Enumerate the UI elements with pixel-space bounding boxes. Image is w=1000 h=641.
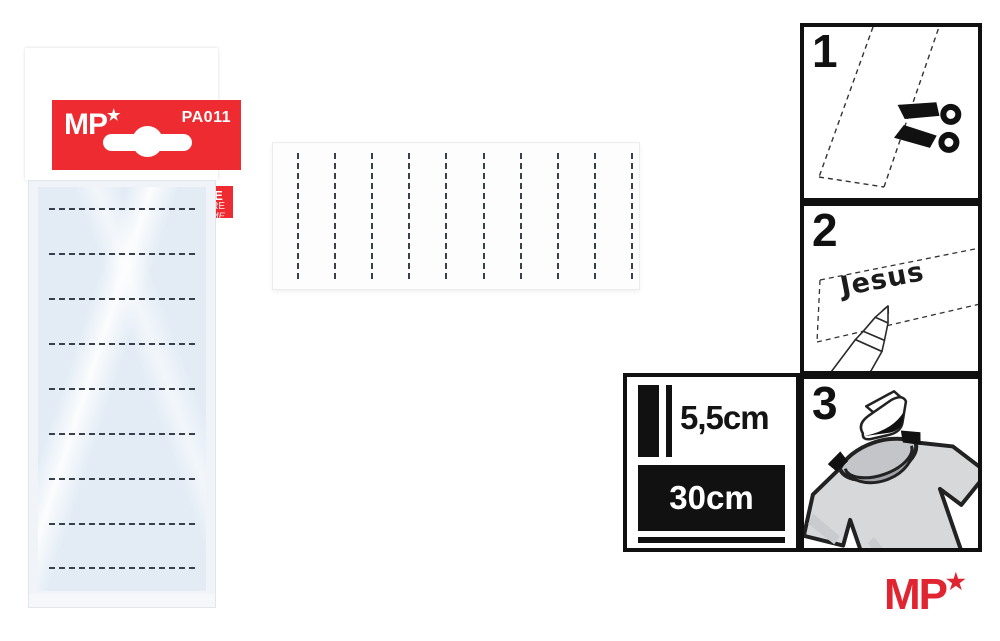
- cutline: [49, 208, 195, 210]
- tape-length-box: 30cm: [638, 465, 785, 531]
- cutline: [49, 298, 195, 300]
- cutline: [49, 433, 195, 435]
- hang-hole-circle: [132, 126, 163, 157]
- footer-brand-star-icon: ★: [946, 569, 966, 594]
- step-3-number: 3: [812, 379, 836, 427]
- step-1-number: 1: [812, 27, 836, 75]
- tape-pad: [38, 187, 206, 591]
- vline: [594, 153, 596, 279]
- vline: [334, 153, 336, 279]
- width-bar-thick: [638, 385, 659, 457]
- cutline: [49, 478, 195, 480]
- tape-strip-sample: [272, 142, 640, 290]
- vline: [557, 153, 559, 279]
- vline: [631, 153, 633, 279]
- cutline: [49, 253, 195, 255]
- cutline: [49, 388, 195, 390]
- step-1-panel: 1: [800, 23, 982, 202]
- vline: [408, 153, 410, 279]
- step-3-panel: 3: [800, 375, 982, 552]
- footer-brand-text: MP: [884, 570, 946, 619]
- package-header-card: MP★ PA011 THERMAL TAPE NAME CINTA TÉRMIC…: [25, 48, 218, 180]
- vline: [445, 153, 447, 279]
- brand-text: MP: [64, 108, 107, 141]
- cutline: [49, 567, 195, 569]
- product-image: MP★ PA011 THERMAL TAPE NAME CINTA TÉRMIC…: [0, 0, 1000, 641]
- brand-star-icon: ★: [107, 107, 120, 124]
- product-code: PA011: [182, 109, 231, 127]
- width-bar-thin: [666, 385, 672, 457]
- dimensions-box: 5,5cm 30cm: [623, 373, 800, 552]
- scissors-icon: [892, 97, 961, 151]
- vline: [297, 153, 299, 279]
- vline: [483, 153, 485, 279]
- bag-bottom-fold: [29, 594, 215, 607]
- length-underbar: [638, 537, 785, 543]
- plastic-bag: [28, 180, 216, 608]
- cutline: [49, 523, 195, 525]
- vline: [520, 153, 522, 279]
- tape-width-value: 5,5cm: [680, 399, 769, 437]
- tape-length-value: 30cm: [669, 479, 753, 517]
- step-2-panel: 2 Jesus: [800, 202, 982, 375]
- vline: [371, 153, 373, 279]
- step-2-number: 2: [812, 206, 836, 254]
- footer-brand-logo: MP★: [884, 570, 966, 619]
- package-header: MP★ PA011: [52, 100, 241, 170]
- cutline: [49, 343, 195, 345]
